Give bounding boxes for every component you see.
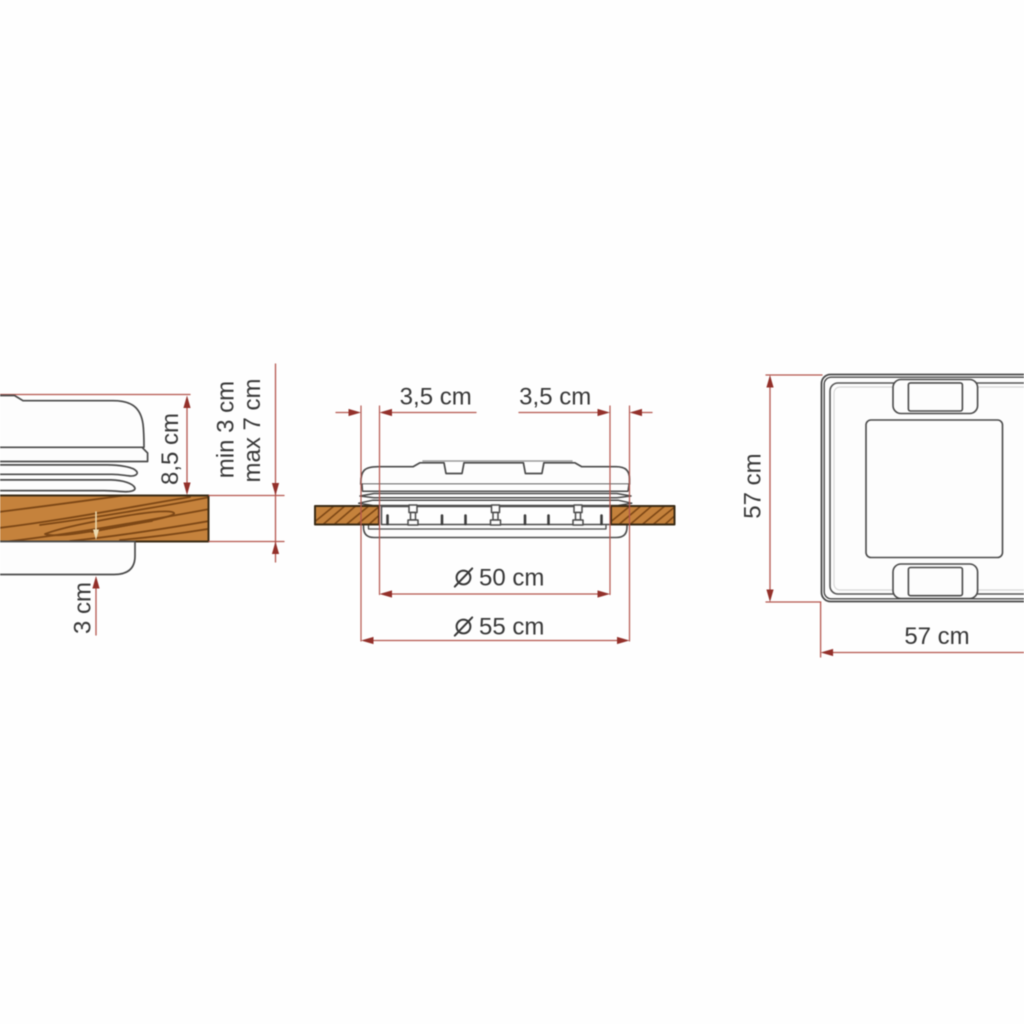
svg-text:50 cm: 50 cm — [479, 565, 544, 592]
svg-text:8,5 cm: 8,5 cm — [157, 413, 184, 485]
svg-text:min 3 cm: min 3 cm — [212, 381, 239, 478]
svg-text:57 cm: 57 cm — [739, 453, 766, 518]
svg-text:max 7 cm: max 7 cm — [239, 378, 266, 482]
svg-text:57 cm: 57 cm — [904, 623, 969, 650]
svg-text:3,5 cm: 3,5 cm — [519, 384, 591, 411]
svg-text:55 cm: 55 cm — [479, 614, 544, 641]
svg-text:3,5 cm: 3,5 cm — [400, 384, 472, 411]
svg-text:3 cm: 3 cm — [69, 582, 96, 634]
